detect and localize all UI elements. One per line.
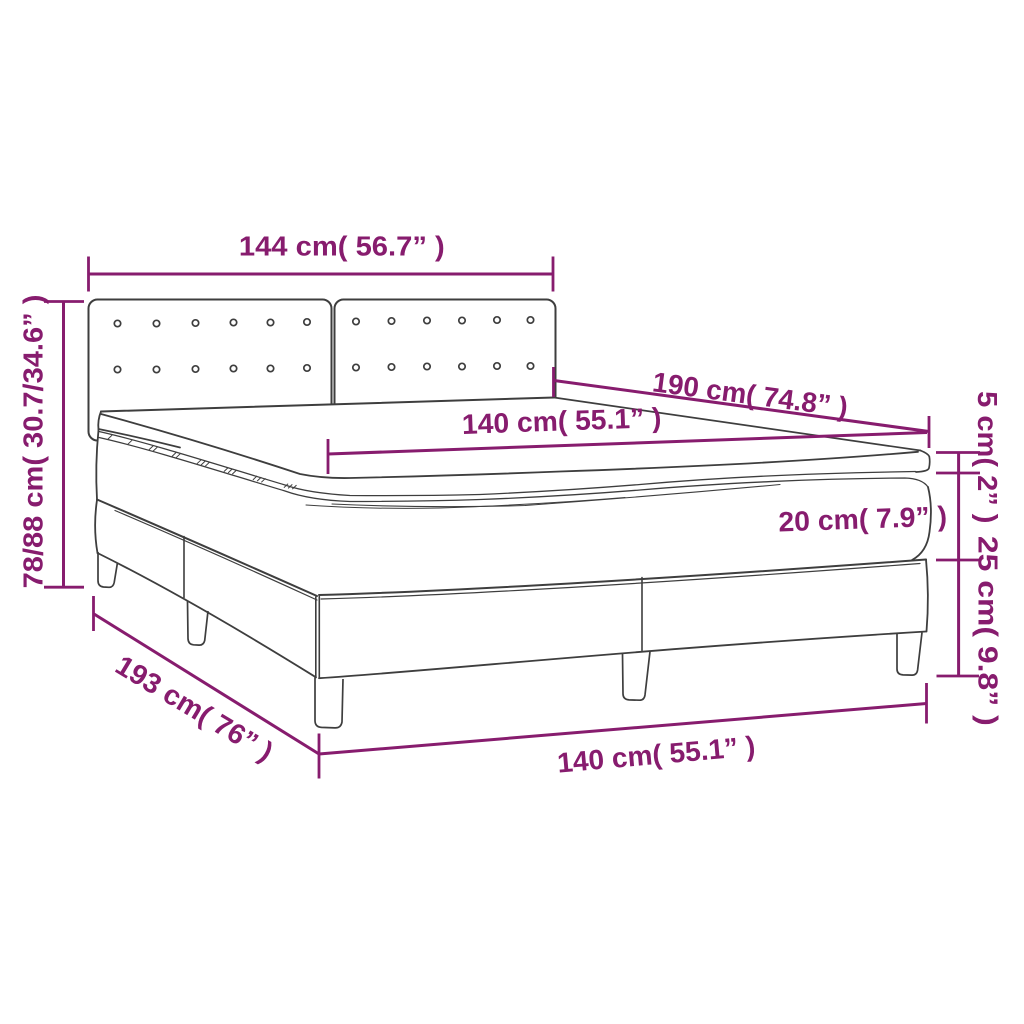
svg-text:5 cm( 2” ): 5 cm( 2” ) <box>971 391 1002 523</box>
svg-text:25 cm( 9.8” ): 25 cm( 9.8” ) <box>972 536 1003 726</box>
svg-text:20 cm( 7.9” ): 20 cm( 7.9” ) <box>778 500 948 538</box>
svg-text:144 cm( 56.7” ): 144 cm( 56.7” ) <box>239 231 445 262</box>
svg-text:78/88 cm( 30.7/34.6” ): 78/88 cm( 30.7/34.6” ) <box>18 295 49 589</box>
